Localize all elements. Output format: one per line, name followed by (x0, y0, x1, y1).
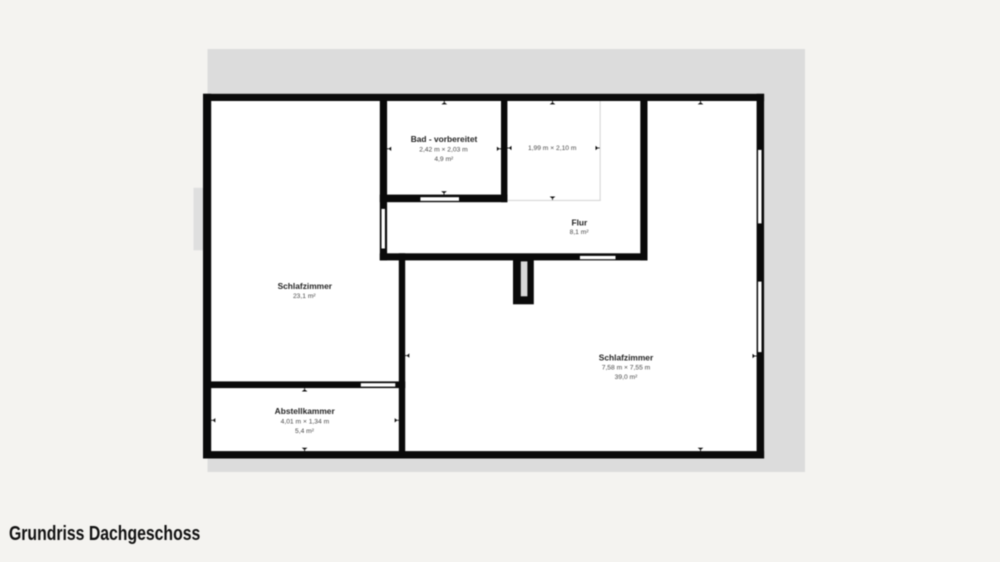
svg-text:4,01 m × 1,34 m: 4,01 m × 1,34 m (281, 418, 330, 425)
svg-text:7,58 m × 7,55 m: 7,58 m × 7,55 m (602, 365, 651, 372)
svg-text:Bad - vorbereitet: Bad - vorbereitet (411, 134, 478, 144)
svg-text:5,4 m²: 5,4 m² (295, 428, 315, 435)
svg-text:Schlafzimmer: Schlafzimmer (599, 352, 654, 362)
svg-text:23,1 m²: 23,1 m² (293, 293, 316, 300)
svg-text:39,0 m²: 39,0 m² (615, 374, 638, 381)
svg-text:4,9 m²: 4,9 m² (434, 156, 454, 163)
svg-text:Flur: Flur (571, 218, 588, 228)
svg-text:2,42 m × 2,03 m: 2,42 m × 2,03 m (419, 147, 468, 154)
svg-text:1,99 m × 2,10 m: 1,99 m × 2,10 m (528, 145, 577, 152)
svg-text:Schlafzimmer: Schlafzimmer (278, 281, 333, 291)
svg-text:8,1 m²: 8,1 m² (570, 229, 590, 236)
svg-text:Grundriss Dachgeschoss: Grundriss Dachgeschoss (9, 521, 200, 545)
svg-text:Abstellkammer: Abstellkammer (275, 406, 336, 416)
